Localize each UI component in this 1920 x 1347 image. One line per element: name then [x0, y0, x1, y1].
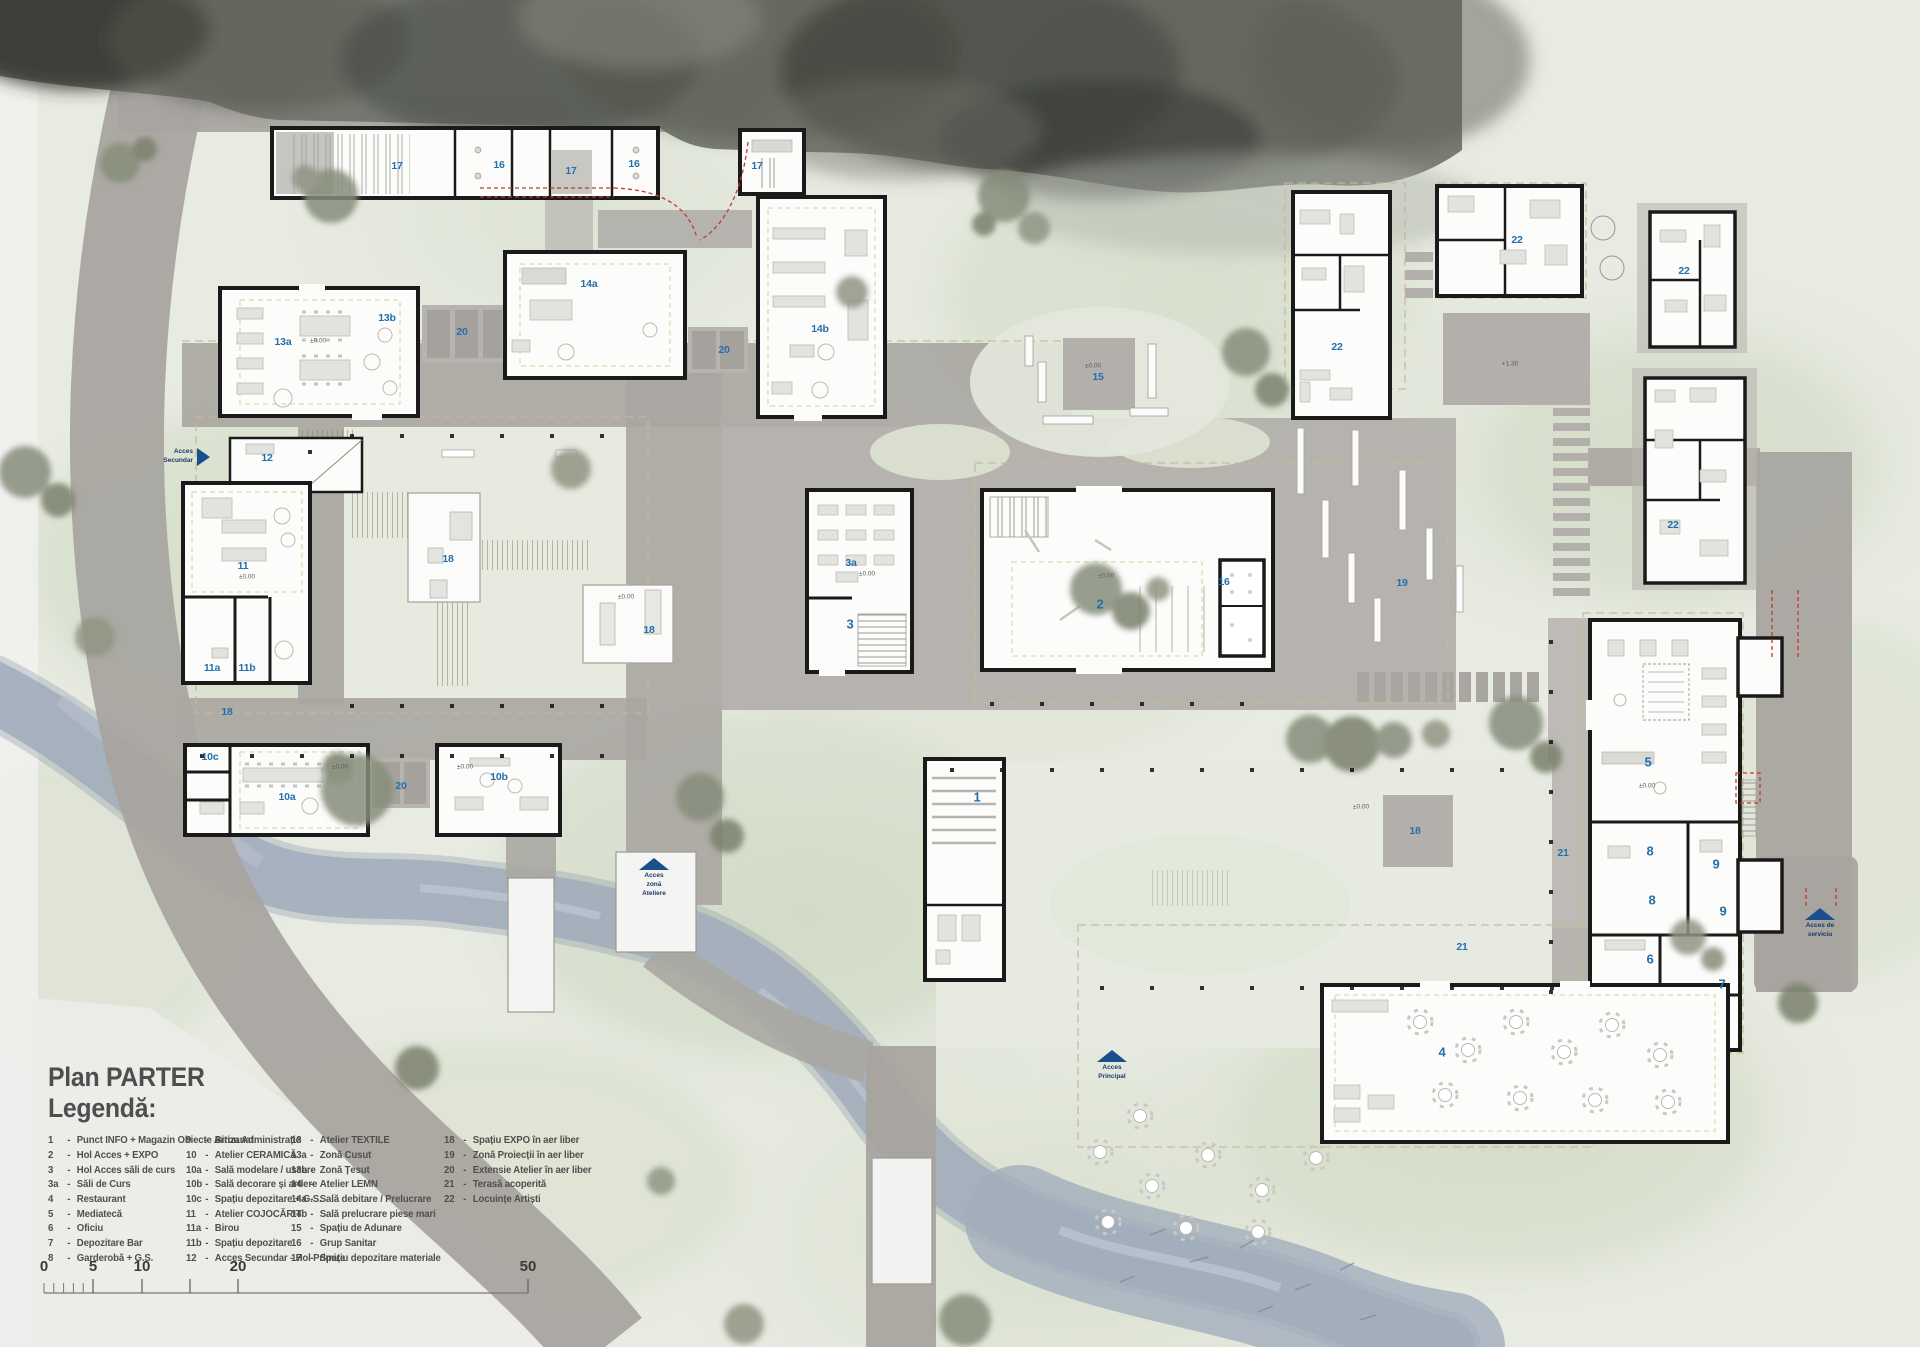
legend-item-number: 18 [444, 1134, 463, 1149]
building-22-house-d [1632, 368, 1757, 590]
legend-item-number: 11a [186, 1222, 205, 1237]
room-label-17: 17 [751, 160, 762, 172]
room-label-22: 22 [1331, 341, 1342, 353]
room-label-14a: 14a [581, 278, 598, 290]
level-marker: ±0.00 [457, 764, 473, 771]
access-label: Acces Secundar [163, 448, 193, 466]
legend-item-number: 5 [48, 1208, 67, 1223]
room-label-17: 17 [565, 165, 576, 177]
legend-item-number: 1 [48, 1134, 67, 1149]
legend-item-separator: - [67, 1208, 77, 1223]
level-marker: ±0.00 [239, 574, 255, 581]
building-22-house-a [1293, 192, 1390, 418]
legend-item-label: Grup Sanitar [320, 1237, 441, 1252]
legend-item-number: 13 [291, 1134, 310, 1149]
room-label-20: 20 [395, 780, 406, 792]
building-14b-lemn [758, 197, 885, 421]
legend-columns: 1-Punct INFO + Magazin Obiecte Artizanat… [48, 1134, 688, 1274]
building-22-house-c [1637, 203, 1747, 353]
legend-item-separator: - [205, 1237, 215, 1252]
legend-item-number: 6 [48, 1222, 67, 1237]
legend-item-number: 10 [186, 1149, 205, 1164]
legend-item-number: 3a [48, 1178, 67, 1193]
legend-item-separator: - [310, 1164, 320, 1179]
legend-item-number: 10a [186, 1164, 205, 1179]
legend-item-label: Spațiu EXPO în aer liber [473, 1134, 592, 1149]
access-label: Acces de serviciu [1806, 922, 1835, 940]
legend-item-label: Sală debitare / Prelucrare [320, 1193, 441, 1208]
level-marker: ±0.00 [310, 338, 326, 345]
legend-item: 14a-Sală debitare / Prelucrare [291, 1193, 441, 1208]
legend-item-separator: - [463, 1193, 473, 1208]
room-label-11: 11 [238, 560, 249, 572]
room-label-9: 9 [1719, 904, 1726, 919]
legend-item-number: 14a [291, 1193, 310, 1208]
legend-item-separator: - [463, 1164, 473, 1179]
legend-item-number: 11 [186, 1208, 205, 1223]
room-label-5: 5 [1644, 755, 1651, 770]
legend-item: 13b-Zonă Țesut [291, 1164, 441, 1179]
building-4-restaurant [1322, 981, 1728, 1142]
legend-item-label: Terasă acoperită [473, 1178, 592, 1193]
legend-item-number: 21 [444, 1178, 463, 1193]
legend-item-label: Zonă Proiecții în aer liber [473, 1149, 592, 1164]
room-label-18: 18 [1409, 825, 1420, 837]
legend-item-label: Atelier LEMN [320, 1178, 441, 1193]
room-label-15: 15 [1092, 371, 1103, 383]
room-label-8: 8 [1648, 893, 1655, 908]
legend-item-number: 19 [444, 1149, 463, 1164]
legend-item-number: 15 [291, 1222, 310, 1237]
legend-item-separator: - [67, 1222, 77, 1237]
bridge-west [508, 878, 554, 1012]
room-label-16: 16 [493, 159, 504, 171]
room-label-12: 12 [261, 452, 272, 464]
legend-item-number: 16 [291, 1237, 310, 1252]
room-label-21: 21 [1456, 941, 1467, 953]
legend-item-separator: - [205, 1134, 215, 1149]
access-arrow-icon [197, 448, 210, 466]
room-label-10b: 10b [490, 771, 508, 783]
room-label-18: 18 [442, 553, 453, 565]
room-label-4: 4 [1438, 1045, 1445, 1060]
room-label-18: 18 [221, 706, 232, 718]
legend-item-label: Locuințe Artiști [473, 1193, 592, 1208]
legend-item-separator: - [205, 1149, 215, 1164]
room-label-13a: 13a [275, 336, 292, 348]
legend-item-separator: - [463, 1149, 473, 1164]
room-label-20: 20 [456, 326, 467, 338]
legend-item-number: 22 [444, 1193, 463, 1208]
room-label-2: 2 [1096, 597, 1103, 612]
building-depozitare-17-anexa [740, 130, 804, 194]
scale-bar: 05102050 [30, 1258, 550, 1300]
level-marker: ±0.00 [1353, 804, 1369, 811]
level-marker: ±0.00 [859, 571, 875, 578]
legend-item-separator: - [310, 1222, 320, 1237]
legend-item-separator: - [67, 1237, 77, 1252]
bridge-principal [872, 1158, 932, 1284]
room-label-17: 17 [391, 160, 402, 172]
legend-item-label: Spațiu de Adunare [320, 1222, 441, 1237]
legend-item-separator: - [463, 1134, 473, 1149]
legend-item-separator: - [205, 1178, 215, 1193]
room-label-20: 20 [718, 344, 729, 356]
room-label-18: 18 [643, 624, 654, 636]
room-label-1: 1 [973, 790, 980, 805]
room-label-6: 6 [1646, 952, 1653, 967]
legend-item-number: 7 [48, 1237, 67, 1252]
legend-col-3: 13-Atelier TEXTILE13a-Zonă Cusut13b-Zonă… [291, 1134, 447, 1266]
legend-item: 21-Terasă acoperită [444, 1178, 592, 1193]
access-marker: Acces de serviciu [1788, 908, 1852, 940]
access-marker: Acces zonă Ateliere [622, 858, 686, 898]
room-label-3: 3 [846, 617, 853, 632]
level-marker: ±0.00 [1085, 363, 1101, 370]
site-plan-page: 171617161713a13b2014a2014b121111a11b1810… [0, 0, 1920, 1347]
legend-item-separator: - [205, 1208, 215, 1223]
room-label-8: 8 [1646, 844, 1653, 859]
building-14a-lemn [505, 252, 685, 378]
legend-item-number: 13b [291, 1164, 310, 1179]
room-label-3a: 3a [845, 557, 856, 569]
plan-title: Plan PARTER [48, 1062, 637, 1093]
building-3-sali-curs [807, 490, 912, 676]
legend-item-label: Sală prelucrare piese mari [320, 1208, 441, 1223]
legend-item-separator: - [67, 1149, 77, 1164]
legend-item-separator: - [205, 1222, 215, 1237]
access-arrow-icon [1097, 1050, 1127, 1062]
legend-item-separator: - [67, 1164, 77, 1179]
legend-item-number: 3 [48, 1164, 67, 1179]
room-label-21: 21 [1557, 847, 1568, 859]
level-marker: ±0.00 [332, 764, 348, 771]
access-label: Acces zonă Ateliere [642, 872, 666, 898]
access-arrow-icon [1805, 908, 1835, 920]
building-22-house-b [1437, 186, 1582, 296]
legend-item-label: Zonă Țesut [320, 1164, 441, 1179]
legend-col-4: 18-Spațiu EXPO în aer liber19-Zonă Proie… [444, 1134, 598, 1208]
room-label-10a: 10a [279, 791, 296, 803]
legend-item: 20-Extensie Atelier în aer liber [444, 1164, 592, 1179]
room-label-22: 22 [1678, 265, 1689, 277]
legend-item: 13a-Zonă Cusut [291, 1149, 441, 1164]
room-label-10c: 10c [202, 751, 219, 763]
legend-item-number: 11b [186, 1237, 205, 1252]
room-label-19: 19 [1396, 577, 1407, 589]
legend-item-separator: - [463, 1178, 473, 1193]
legend-item: 14b-Sală prelucrare piese mari [291, 1208, 441, 1223]
legend-item-separator: - [310, 1237, 320, 1252]
scale-ticks [30, 1258, 550, 1300]
room-label-13b: 13b [378, 312, 396, 324]
legend-item-separator: - [67, 1134, 77, 1149]
legend-item-separator: - [205, 1193, 215, 1208]
legend-item: 18-Spațiu EXPO în aer liber [444, 1134, 592, 1149]
legend-item: 15-Spațiu de Adunare [291, 1222, 441, 1237]
room-label-22: 22 [1511, 234, 1522, 246]
legend-item-separator: - [310, 1149, 320, 1164]
legend-item-label: Extensie Atelier în aer liber [473, 1164, 592, 1179]
room-label-16: 16 [1218, 576, 1229, 588]
room-label-11b: 11b [239, 662, 256, 674]
legend-title: Legendă: [48, 1093, 637, 1124]
room-label-16: 16 [628, 158, 639, 170]
access-marker: Acces Secundar [138, 448, 210, 466]
level-marker: ±0.00 [618, 594, 634, 601]
legend-item-number: 14b [291, 1208, 310, 1223]
legend-item-separator: - [310, 1134, 320, 1149]
legend: Plan PARTER Legendă: 1-Punct INFO + Maga… [48, 1062, 688, 1274]
legend-item-label: Zonă Cusut [320, 1149, 441, 1164]
access-label: Acces Principal [1098, 1064, 1125, 1082]
building-13-textile [220, 284, 418, 420]
legend-item: 13-Atelier TEXTILE [291, 1134, 441, 1149]
legend-item-number: 10b [186, 1178, 205, 1193]
legend-item-number: 2 [48, 1149, 67, 1164]
legend-item-separator: - [205, 1164, 215, 1179]
room-label-11a: 11a [204, 662, 220, 674]
legend-item-number: 13a [291, 1149, 310, 1164]
building-1-punct-info [925, 759, 1004, 980]
room-label-14b: 14b [811, 323, 829, 335]
room-label-7: 7 [1718, 977, 1725, 992]
level-marker: +1.30 [1502, 361, 1518, 368]
legend-item-separator: - [310, 1193, 320, 1208]
legend-item-number: 9 [186, 1134, 205, 1149]
room-label-9: 9 [1712, 857, 1719, 872]
legend-item-separator: - [67, 1178, 77, 1193]
legend-item-number: 14 [291, 1178, 310, 1193]
legend-item-label: Atelier TEXTILE [320, 1134, 441, 1149]
legend-item: 22-Locuințe Artiști [444, 1193, 592, 1208]
legend-item-number: 4 [48, 1193, 67, 1208]
building-11-cojocarit [183, 483, 310, 683]
level-marker: ±0.00 [1639, 783, 1655, 790]
access-arrow-icon [639, 858, 669, 870]
legend-item-separator: - [67, 1193, 77, 1208]
legend-item-number: 20 [444, 1164, 463, 1179]
building-10b-ceramica [437, 745, 560, 835]
legend-item-separator: - [310, 1178, 320, 1193]
access-marker: Acces Principal [1080, 1050, 1144, 1082]
level-marker: ±0.00 [1098, 573, 1114, 580]
room-label-22: 22 [1667, 519, 1678, 531]
legend-item: 16-Grup Sanitar [291, 1237, 441, 1252]
legend-item: 19-Zonă Proiecții în aer liber [444, 1149, 592, 1164]
legend-item-separator: - [310, 1208, 320, 1223]
legend-item-number: 10c [186, 1193, 205, 1208]
legend-item: 14-Atelier LEMN [291, 1178, 441, 1193]
